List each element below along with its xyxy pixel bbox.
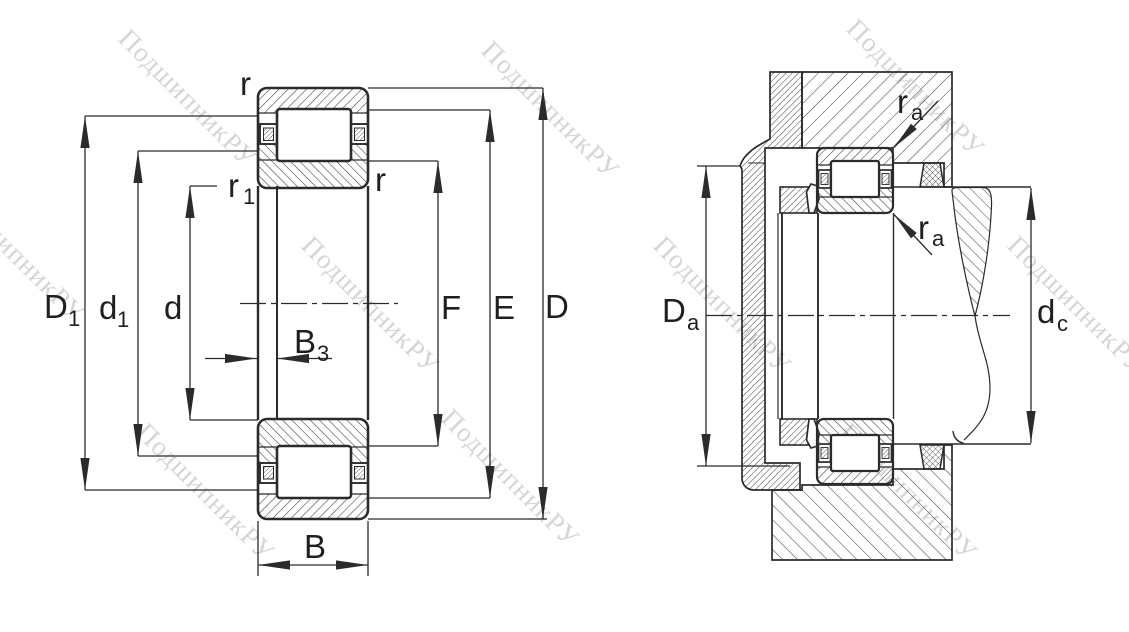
radius-label-ra-bottom: r bbox=[918, 209, 929, 246]
radius-label-r-right: r bbox=[375, 161, 386, 198]
inner-ring-hatch bbox=[817, 419, 893, 435]
seal-ring-bottom bbox=[920, 445, 944, 469]
dim-label-dc: d bbox=[1037, 293, 1055, 330]
roller bbox=[831, 435, 879, 471]
technical-drawing-canvas: ПодшипникРУ ПодшипникРУ ПодшипникРУ Подш… bbox=[0, 0, 1129, 632]
watermark-text: ПодшипникРУ bbox=[436, 403, 586, 553]
radius-label-r1: r bbox=[228, 167, 239, 204]
seal-ring-top bbox=[920, 163, 944, 187]
dim-label-Da: D bbox=[662, 292, 686, 329]
dim-label-d: d bbox=[164, 289, 182, 326]
radius-label-r1-sub: 1 bbox=[243, 184, 255, 209]
dim-label-D: D bbox=[545, 288, 569, 325]
dim-label-D1-sub: 1 bbox=[68, 306, 80, 331]
dim-label-d1-sub: 1 bbox=[117, 307, 129, 332]
right-diagram-mounting-arrangement: D a d c r a r a bbox=[662, 72, 1068, 560]
cage-rivet-hatch bbox=[821, 174, 828, 185]
dim-label-B3: B bbox=[294, 323, 316, 360]
inner-ring-flange-hatch bbox=[258, 144, 278, 160]
watermark-text: ПодшипникРУ bbox=[476, 35, 626, 185]
roller bbox=[831, 161, 879, 197]
roller bbox=[277, 446, 351, 498]
cage-rivet-hatch bbox=[264, 128, 274, 141]
bearing-drawing-svg: ПодшипникРУ ПодшипникРУ ПодшипникРУ Подш… bbox=[0, 0, 1129, 632]
bearing-section-top bbox=[817, 148, 893, 213]
radius-label-r-top: r bbox=[240, 65, 251, 102]
inner-ring-hatch bbox=[817, 197, 893, 213]
radius-label-ra-top: r bbox=[897, 83, 908, 120]
dim-label-B3-sub: 3 bbox=[317, 341, 329, 366]
inner-ring-hatch bbox=[258, 419, 368, 447]
cage-rivet-hatch bbox=[355, 467, 365, 480]
dim-label-d1: d bbox=[99, 289, 117, 326]
dim-label-B: B bbox=[304, 528, 326, 565]
dim-label-F: F bbox=[441, 289, 461, 326]
cage-rivet-hatch bbox=[882, 174, 889, 185]
dim-label-Da-sub: a bbox=[687, 310, 700, 335]
shaft-broken-section-hatch bbox=[952, 188, 992, 317]
radius-label-ra-bottom-sub: a bbox=[932, 226, 945, 251]
roller bbox=[277, 109, 351, 161]
cage-rivet-hatch bbox=[882, 448, 889, 459]
cage-rivet-hatch bbox=[264, 467, 274, 480]
shaft-break-curve bbox=[964, 316, 990, 440]
bearing-section-bottom bbox=[258, 419, 368, 519]
dim-label-E: E bbox=[493, 289, 515, 326]
cage-rivet-hatch bbox=[355, 128, 365, 141]
inner-ring-hatch bbox=[258, 160, 368, 188]
bearing-section-top bbox=[258, 88, 368, 188]
watermark-text: ПодшипникРУ bbox=[1002, 230, 1129, 380]
bearing-section-bottom bbox=[817, 419, 893, 484]
left-diagram-bearing-cross-section: D 1 d 1 d B 3 B F E D r r 1 r bbox=[44, 65, 569, 576]
dim-label-dc-sub: c bbox=[1057, 311, 1068, 336]
radius-label-ra-top-sub: a bbox=[911, 100, 924, 125]
inner-ring-flange-hatch bbox=[258, 447, 278, 463]
dim-label-D1: D bbox=[44, 288, 68, 325]
shaft-fillet bbox=[953, 431, 964, 444]
cage-rivet-hatch bbox=[821, 448, 828, 459]
